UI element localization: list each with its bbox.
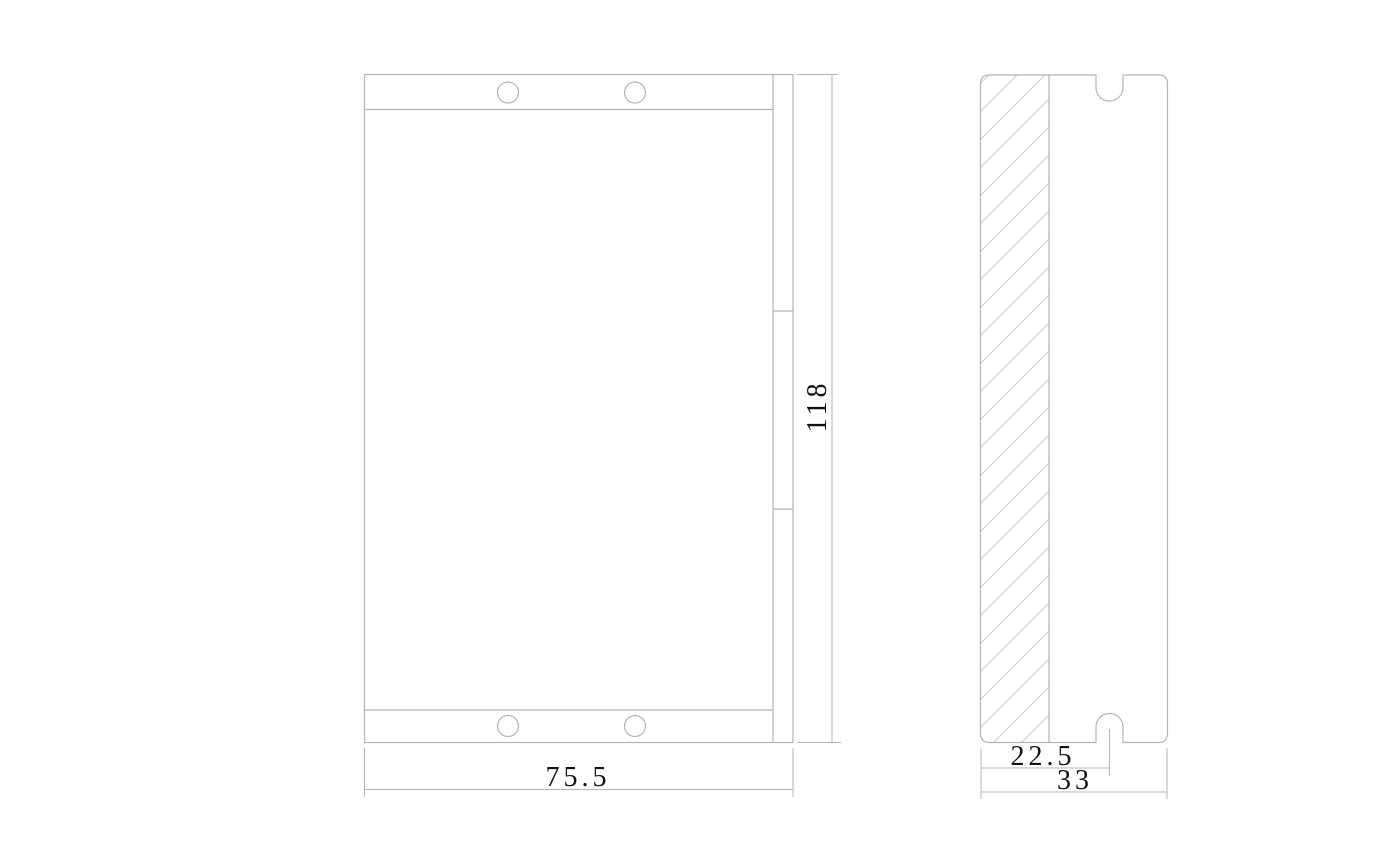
side-width-dimension-label: 33 — [1057, 765, 1093, 796]
mounting-hole-top-left — [498, 82, 519, 103]
front-view-outline — [365, 75, 794, 743]
front-view — [365, 75, 794, 743]
mounting-hole-top-right — [625, 82, 646, 103]
front-height-dimension: 118 — [797, 75, 841, 743]
technical-drawing: 75.5 118 22.5 33 — [0, 0, 1393, 858]
hatch-region — [981, 75, 1050, 743]
height-dimension-label: 118 — [802, 380, 833, 433]
width-dimension-label: 75.5 — [546, 762, 611, 793]
front-width-dimension: 75.5 — [365, 748, 794, 797]
mounting-hole-bottom-right — [625, 716, 646, 737]
side-view — [981, 75, 1168, 743]
drawing-canvas: 75.5 118 22.5 33 — [0, 0, 1393, 858]
mounting-hole-bottom-left — [498, 716, 519, 737]
